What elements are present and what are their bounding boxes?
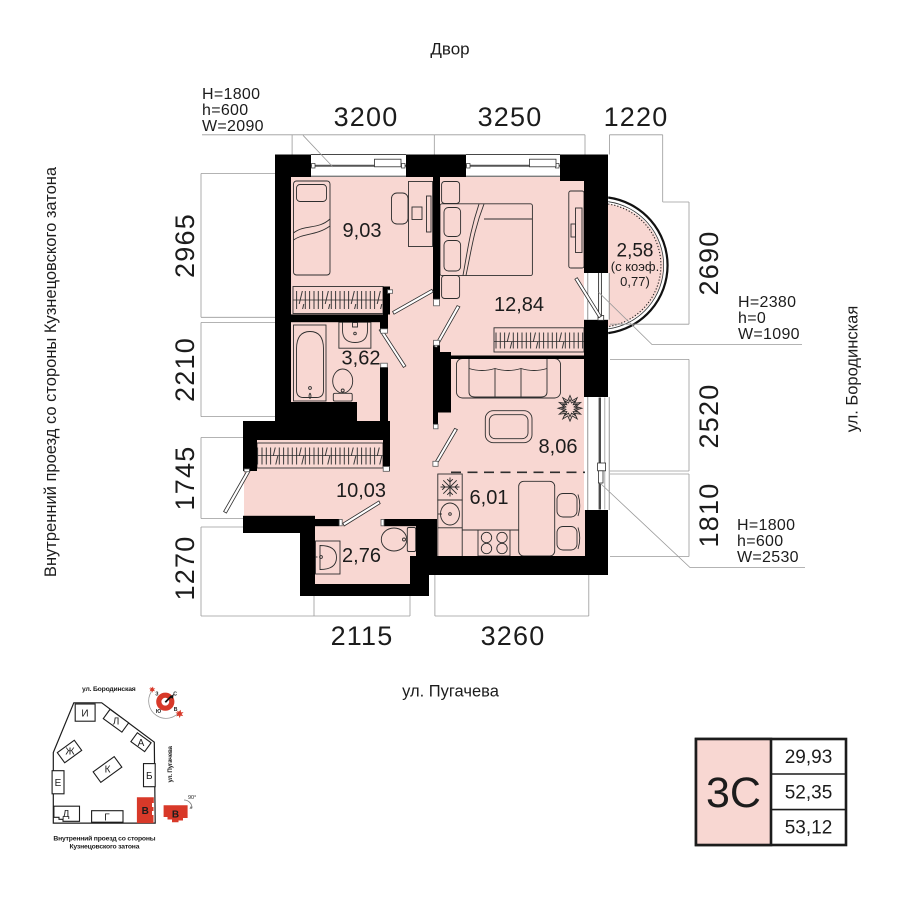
svg-text:6,01: 6,01 bbox=[470, 487, 509, 509]
svg-text:3,62: 3,62 bbox=[342, 348, 381, 370]
svg-text:W=1090: W=1090 bbox=[738, 326, 800, 343]
svg-text:Е: Е bbox=[55, 778, 62, 789]
svg-text:3С: 3С bbox=[706, 769, 761, 817]
svg-text:W=2530: W=2530 bbox=[737, 549, 799, 566]
svg-text:h=600: h=600 bbox=[202, 102, 248, 119]
svg-text:2210: 2210 bbox=[170, 337, 200, 402]
svg-text:А: А bbox=[138, 738, 145, 749]
svg-text:Внутренний проезд со стороны К: Внутренний проезд со стороны Кузнецовско… bbox=[42, 166, 60, 577]
svg-text:2520: 2520 bbox=[694, 384, 724, 449]
svg-text:2115: 2115 bbox=[331, 621, 394, 651]
svg-text:1270: 1270 bbox=[170, 536, 200, 601]
svg-text:W=2090: W=2090 bbox=[202, 118, 264, 135]
svg-text:ул. Пугачева: ул. Пугачева bbox=[167, 746, 174, 783]
svg-text:Г: Г bbox=[104, 813, 110, 824]
svg-text:0,77): 0,77) bbox=[620, 274, 650, 289]
svg-text:1810: 1810 bbox=[694, 483, 724, 548]
svg-text:К: К bbox=[105, 765, 111, 776]
svg-text:(с коэф.: (с коэф. bbox=[611, 259, 659, 274]
svg-text:ул. Бородинская: ул. Бородинская bbox=[844, 306, 862, 433]
svg-text:9,03: 9,03 bbox=[343, 220, 382, 242]
svg-text:8,06: 8,06 bbox=[539, 436, 578, 458]
svg-text:В: В bbox=[174, 707, 178, 713]
svg-text:Кузнецовского затона: Кузнецовского затона bbox=[69, 844, 139, 851]
svg-text:ул. Бородинская: ул. Бородинская bbox=[82, 686, 136, 693]
svg-text:ул. Пугачева: ул. Пугачева bbox=[402, 683, 500, 701]
svg-text:H=1800: H=1800 bbox=[202, 86, 260, 103]
svg-text:h=600: h=600 bbox=[737, 533, 783, 550]
svg-text:3260: 3260 bbox=[481, 621, 546, 651]
svg-text:29,93: 29,93 bbox=[785, 747, 833, 768]
svg-text:90°: 90° bbox=[188, 795, 196, 801]
svg-text:12,84: 12,84 bbox=[494, 294, 544, 316]
svg-text:10,03: 10,03 bbox=[336, 480, 386, 502]
svg-text:2690: 2690 bbox=[694, 231, 724, 296]
svg-text:Двор: Двор bbox=[430, 40, 469, 59]
svg-text:h=0: h=0 bbox=[738, 310, 766, 327]
svg-text:1220: 1220 bbox=[604, 102, 669, 132]
svg-text:53,12: 53,12 bbox=[785, 818, 833, 839]
svg-text:В: В bbox=[172, 810, 179, 821]
svg-text:Л: Л bbox=[113, 717, 120, 728]
svg-text:Д: Д bbox=[63, 809, 70, 820]
svg-text:2965: 2965 bbox=[170, 213, 200, 278]
svg-text:С: С bbox=[173, 692, 177, 698]
svg-text:3200: 3200 bbox=[334, 102, 399, 132]
svg-text:H=2380: H=2380 bbox=[738, 294, 796, 311]
svg-text:1745: 1745 bbox=[170, 446, 200, 511]
svg-text:Ю: Ю bbox=[156, 709, 162, 715]
svg-text:H=1800: H=1800 bbox=[737, 517, 795, 534]
svg-text:И: И bbox=[81, 709, 88, 720]
svg-text:2,76: 2,76 bbox=[342, 545, 381, 567]
svg-text:В: В bbox=[142, 806, 149, 817]
svg-text:Ж: Ж bbox=[65, 747, 75, 758]
svg-text:Внутренний проезд со стороны: Внутренний проезд со стороны bbox=[53, 835, 155, 843]
svg-text:3250: 3250 bbox=[478, 102, 543, 132]
svg-text:52,35: 52,35 bbox=[785, 783, 833, 804]
svg-text:Б: Б bbox=[146, 771, 153, 782]
